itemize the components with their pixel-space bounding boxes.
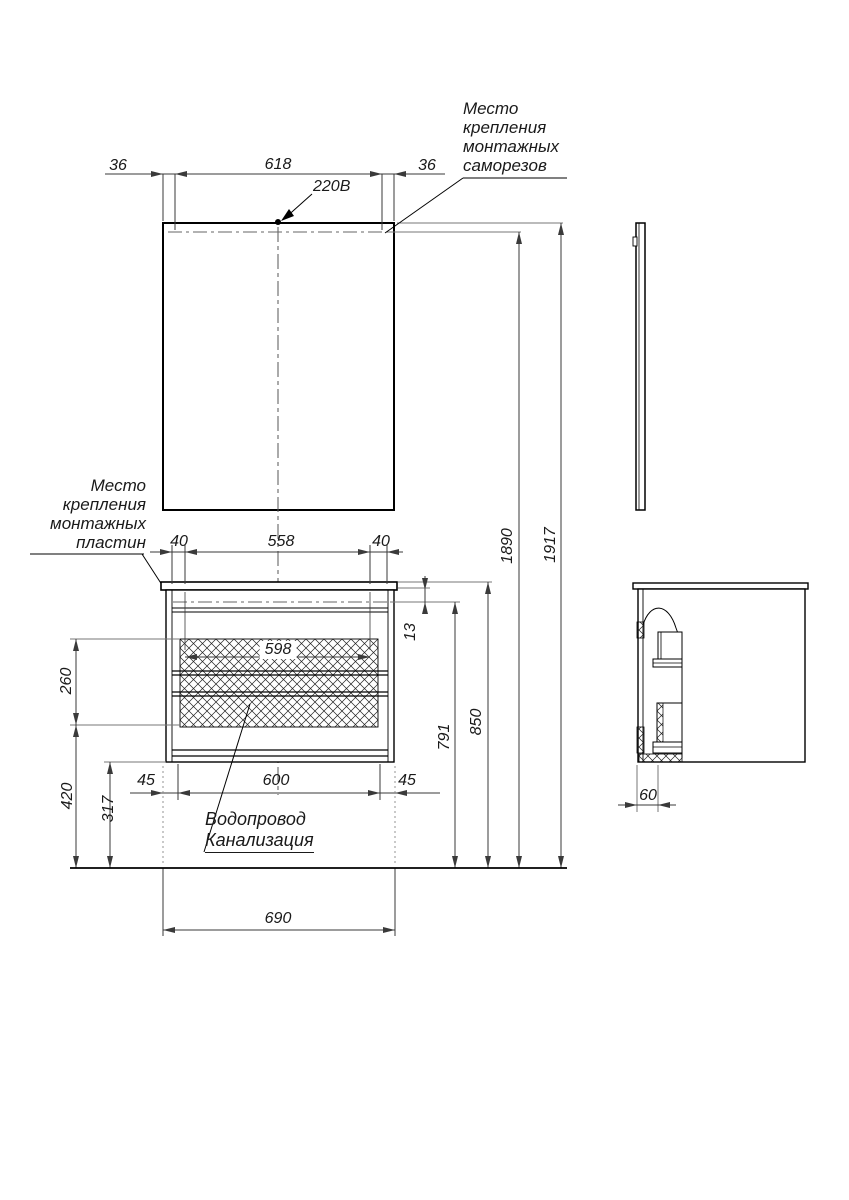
cabinet-side-view — [633, 583, 808, 762]
note-line: крепления — [463, 118, 559, 137]
note-line: монтажных — [463, 137, 559, 156]
left-extension-lines — [70, 639, 180, 762]
dim-mirror-top-height: 1917 — [542, 527, 560, 563]
plates-note-leader — [30, 554, 164, 588]
note-line: Водопровод — [205, 809, 314, 830]
dim-service-zone-height: 420 — [59, 783, 77, 810]
gap-dimension — [390, 576, 492, 614]
note-line: пластин — [28, 533, 146, 552]
dim-clearance-height: 317 — [100, 796, 118, 823]
mirror-side-view — [633, 223, 645, 510]
dim-base-left: 45 — [137, 772, 155, 790]
screws-mounting-note: Место крепления монтажных саморезов — [463, 99, 559, 175]
plumbing-note: Водопровод Канализация — [205, 809, 314, 853]
installation-drawing: Место крепления монтажных саморезов Мест… — [0, 0, 849, 1200]
dim-screw-span: 618 — [265, 156, 292, 174]
voltage-label: 220В — [313, 178, 350, 196]
dim-countertop-height: 850 — [468, 709, 486, 736]
note-line: крепления — [28, 495, 146, 514]
dim-total-width: 690 — [265, 910, 292, 928]
dim-hatch-width: 598 — [260, 641, 297, 659]
dim-top-gap: 13 — [402, 623, 420, 641]
note-line: Место — [463, 99, 559, 118]
left-vertical-dimensions — [76, 639, 110, 868]
note-line: монтажных — [28, 514, 146, 533]
dim-cabinet-height: 791 — [436, 724, 454, 751]
dim-base-right: 45 — [398, 772, 416, 790]
dim-plate-left: 40 — [170, 533, 188, 551]
dim-mirror-right-margin: 36 — [418, 157, 436, 175]
dim-plate-right: 40 — [372, 533, 390, 551]
dim-side-depth: 60 — [639, 787, 657, 805]
cabinet-front-view — [161, 582, 397, 762]
screws-note-leader — [385, 178, 567, 233]
voltage-leader — [275, 194, 312, 225]
dim-body-width: 600 — [263, 772, 290, 790]
drawing-linework — [0, 0, 849, 1200]
mirror-top-dimension — [105, 174, 445, 230]
dim-hatch-height: 260 — [58, 668, 76, 695]
note-line: Канализация — [205, 830, 314, 853]
note-line: Место — [28, 476, 146, 495]
plates-mounting-note: Место крепления монтажных пластин — [28, 476, 146, 552]
dim-screw-level-height: 1890 — [499, 528, 517, 564]
floor-and-total-width — [70, 766, 567, 936]
dim-mirror-left-margin: 36 — [109, 157, 127, 175]
dim-plate-span: 558 — [268, 533, 295, 551]
note-line: саморезов — [463, 156, 559, 175]
